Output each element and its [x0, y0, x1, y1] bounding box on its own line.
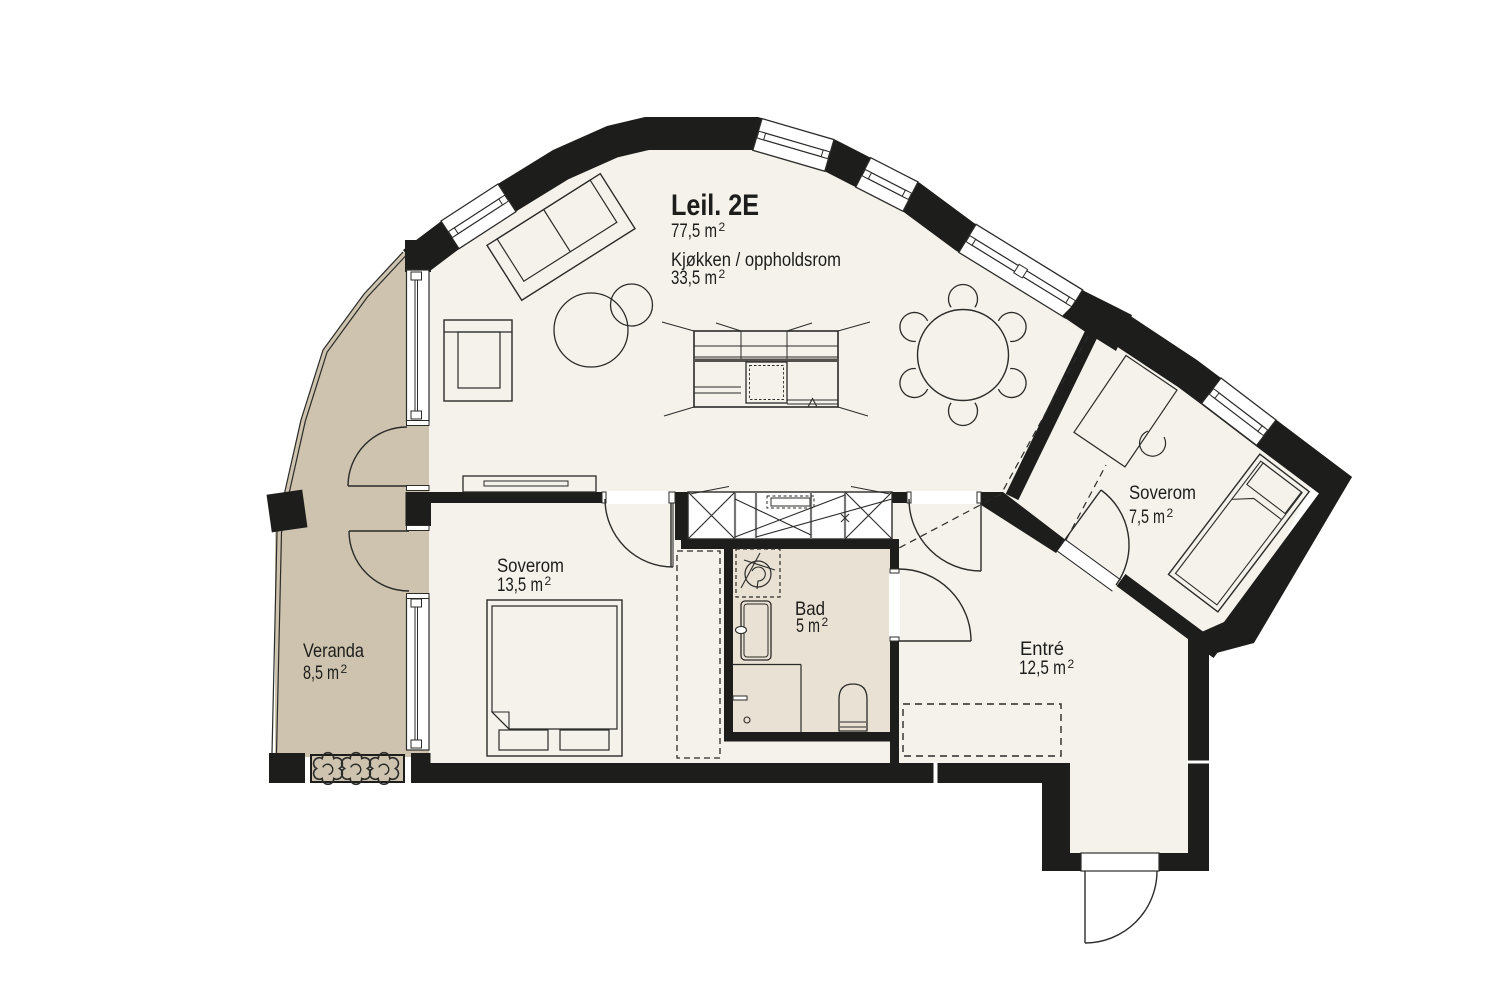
svg-text:2: 2: [1167, 506, 1174, 520]
svg-text:13,5 m: 13,5 m: [497, 574, 543, 596]
svg-text:Soverom: Soverom: [1129, 482, 1196, 504]
svg-text:2: 2: [341, 662, 348, 676]
svg-text:Veranda: Veranda: [303, 640, 364, 662]
svg-text:7,5 m: 7,5 m: [1129, 506, 1165, 528]
svg-text:2: 2: [719, 220, 726, 234]
svg-text:2: 2: [719, 267, 726, 281]
svg-text:5 m: 5 m: [796, 615, 820, 637]
svg-text:33,5 m: 33,5 m: [671, 267, 717, 289]
svg-text:Leil. 2E: Leil. 2E: [671, 189, 759, 222]
svg-text:2: 2: [1068, 657, 1075, 671]
svg-text:12,5 m: 12,5 m: [1019, 657, 1066, 679]
svg-text:77,5 m: 77,5 m: [671, 220, 717, 242]
svg-text:8,5 m: 8,5 m: [303, 662, 339, 684]
svg-text:2: 2: [822, 615, 829, 629]
svg-text:2: 2: [545, 574, 552, 588]
